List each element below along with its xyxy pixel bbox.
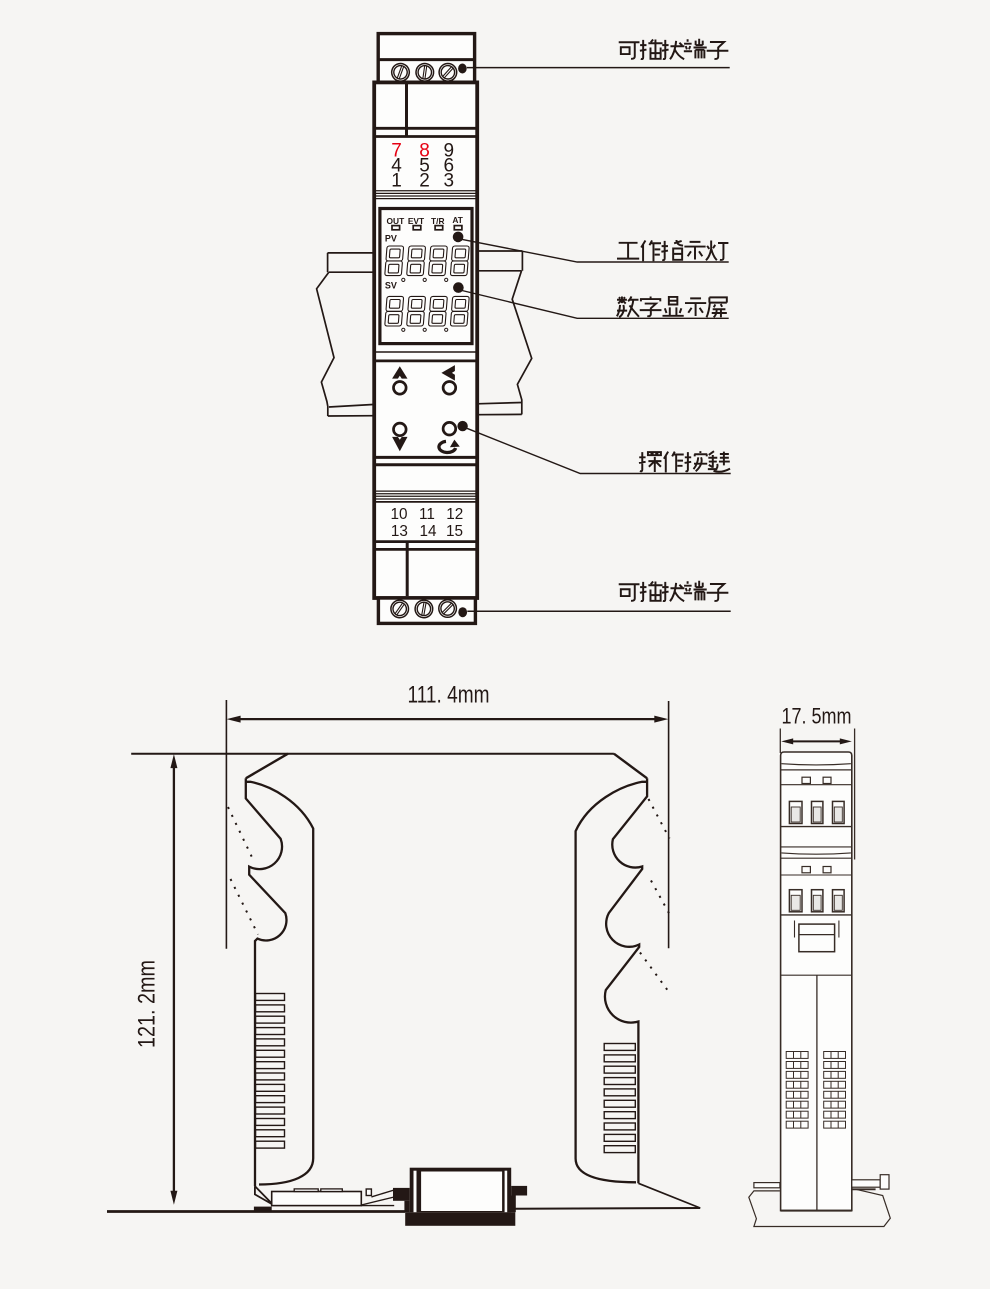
svg-text:15: 15 — [446, 523, 463, 540]
svg-text:17. 5mm: 17. 5mm — [782, 704, 852, 729]
svg-text:12: 12 — [446, 506, 463, 523]
svg-text:121. 2mm: 121. 2mm — [134, 960, 161, 1048]
svg-text:1: 1 — [391, 170, 402, 191]
svg-text:2: 2 — [419, 170, 430, 191]
svg-text:OUT: OUT — [387, 216, 406, 226]
svg-text:14: 14 — [419, 523, 437, 540]
svg-text:111. 4mm: 111. 4mm — [408, 682, 490, 709]
svg-text:EVT: EVT — [408, 216, 425, 226]
svg-text:11: 11 — [419, 506, 435, 523]
svg-text:T/R: T/R — [431, 216, 445, 226]
svg-text:PV: PV — [385, 234, 397, 244]
svg-text:AT: AT — [452, 215, 463, 225]
svg-text:10: 10 — [390, 506, 407, 523]
svg-text:SV: SV — [385, 281, 397, 291]
svg-text:13: 13 — [391, 523, 408, 540]
svg-text:3: 3 — [444, 170, 455, 191]
